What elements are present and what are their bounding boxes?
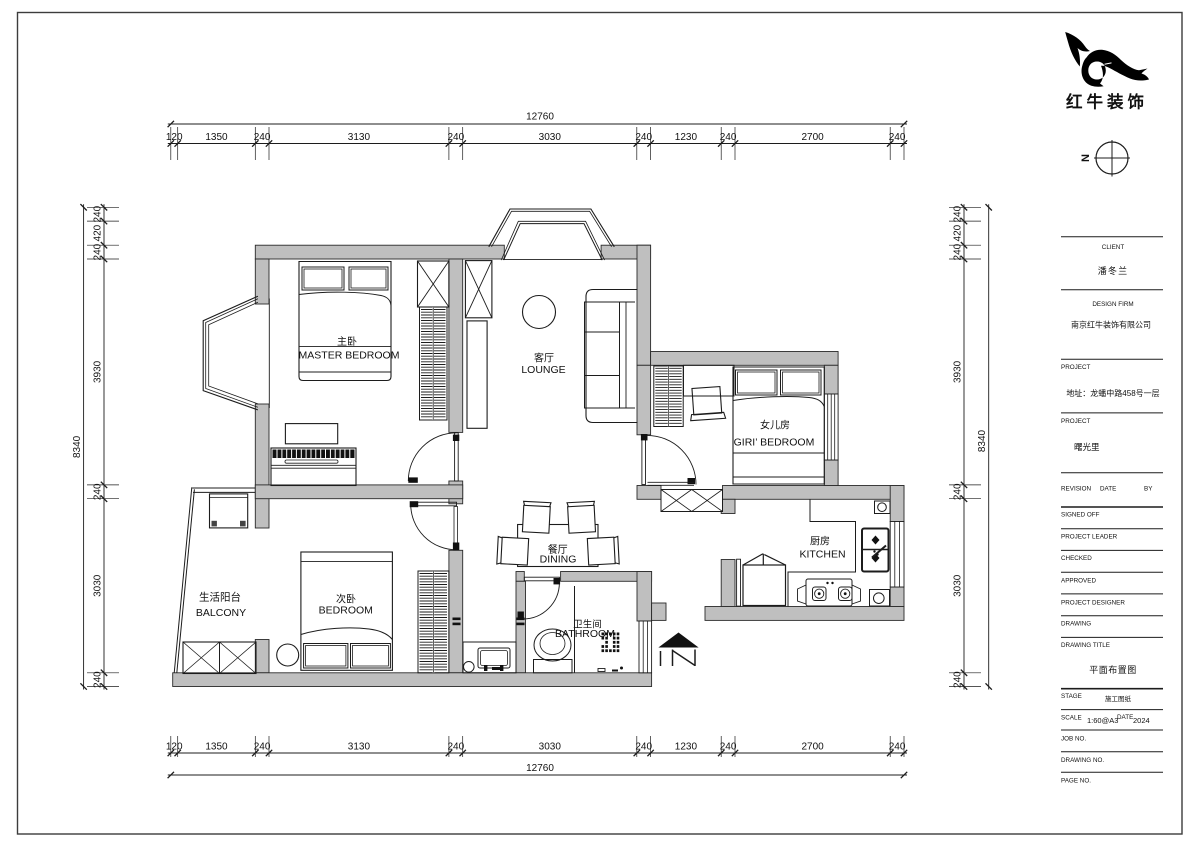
svg-text:420: 420	[93, 224, 104, 241]
svg-text:240: 240	[93, 671, 104, 688]
svg-text:主卧: 主卧	[337, 335, 357, 348]
svg-text:BEDROOM: BEDROOM	[319, 605, 373, 617]
svg-text:红牛装饰: 红牛装饰	[1066, 92, 1148, 112]
svg-text:12760: 12760	[526, 112, 554, 123]
svg-text:3030: 3030	[539, 742, 562, 753]
svg-text:1230: 1230	[675, 742, 698, 753]
svg-text:PROJECT DESIGNER: PROJECT DESIGNER	[1061, 600, 1125, 607]
svg-text:地址：龙蟠中路458号一层: 地址：龙蟠中路458号一层	[1066, 388, 1159, 398]
svg-text:240: 240	[889, 132, 906, 143]
svg-text:3930: 3930	[953, 360, 964, 383]
svg-text:曙光里: 曙光里	[1074, 442, 1100, 452]
svg-text:GIRI’ BEDROOM: GIRI’ BEDROOM	[734, 437, 815, 449]
svg-text:平面布置图: 平面布置图	[1089, 664, 1137, 675]
svg-text:南京红牛装饰有限公司: 南京红牛装饰有限公司	[1071, 320, 1151, 330]
svg-text:2024: 2024	[1133, 716, 1150, 725]
svg-text:DINING: DINING	[540, 554, 577, 566]
svg-text:BALCONY: BALCONY	[196, 607, 246, 619]
svg-text:KITCHEN: KITCHEN	[799, 549, 845, 561]
svg-text:240: 240	[254, 132, 271, 143]
svg-text:PAGE NO.: PAGE NO.	[1061, 778, 1091, 785]
svg-text:女儿房: 女儿房	[760, 419, 790, 432]
svg-text:JOB NO.: JOB NO.	[1061, 736, 1086, 743]
svg-text:DATE: DATE	[1100, 486, 1116, 493]
svg-text:DESIGN FIRM: DESIGN FIRM	[1092, 301, 1133, 308]
svg-text:DATE: DATE	[1117, 714, 1133, 721]
svg-text:REVISION: REVISION	[1061, 486, 1092, 493]
svg-text:240: 240	[720, 132, 737, 143]
svg-text:LOUNGE: LOUNGE	[521, 364, 565, 376]
svg-text:240: 240	[635, 742, 652, 753]
svg-text:CLIENT: CLIENT	[1102, 244, 1125, 251]
svg-text:240: 240	[953, 243, 964, 260]
svg-text:SIGNED OFF: SIGNED OFF	[1061, 512, 1100, 519]
svg-text:2700: 2700	[801, 742, 824, 753]
svg-text:240: 240	[447, 132, 464, 143]
svg-text:8340: 8340	[72, 435, 83, 458]
svg-text:1350: 1350	[205, 742, 228, 753]
svg-text:厨房: 厨房	[810, 535, 830, 548]
svg-text:MASTER BEDROOM: MASTER BEDROOM	[299, 350, 400, 362]
svg-text:BY: BY	[1144, 486, 1153, 493]
svg-text:DRAWING NO.: DRAWING NO.	[1061, 757, 1104, 764]
svg-text:240: 240	[254, 742, 271, 753]
svg-text:240: 240	[889, 742, 906, 753]
svg-text:2700: 2700	[801, 132, 824, 143]
svg-text:120: 120	[166, 742, 183, 753]
svg-text:3130: 3130	[348, 132, 371, 143]
svg-text:240: 240	[635, 132, 652, 143]
svg-text:12760: 12760	[526, 763, 554, 774]
svg-text:PROJECT: PROJECT	[1061, 364, 1091, 371]
svg-text:3030: 3030	[539, 132, 562, 143]
svg-text:240: 240	[93, 205, 104, 222]
svg-text:SCALE: SCALE	[1061, 715, 1082, 722]
svg-text:DRAWING: DRAWING	[1061, 621, 1091, 628]
svg-text:潘冬兰: 潘冬兰	[1098, 265, 1129, 276]
svg-text:PROJECT: PROJECT	[1061, 418, 1091, 425]
svg-text:3030: 3030	[953, 574, 964, 597]
svg-text:BATHROOM: BATHROOM	[555, 628, 615, 640]
svg-text:3130: 3130	[348, 742, 371, 753]
svg-text:240: 240	[447, 742, 464, 753]
svg-text:STAGE: STAGE	[1061, 693, 1082, 700]
svg-text:CHECKED: CHECKED	[1061, 555, 1092, 562]
svg-text:生活阳台: 生活阳台	[199, 591, 241, 604]
svg-text:240: 240	[953, 205, 964, 222]
svg-text:240: 240	[720, 742, 737, 753]
svg-text:420: 420	[953, 224, 964, 241]
svg-text:240: 240	[93, 243, 104, 260]
svg-text:PROJECT LEADER: PROJECT LEADER	[1061, 534, 1118, 541]
svg-text:DRAWING TITLE: DRAWING TITLE	[1061, 642, 1110, 649]
svg-text:APPROVED: APPROVED	[1061, 578, 1096, 585]
svg-text:客厅: 客厅	[534, 352, 554, 365]
svg-text:240: 240	[953, 671, 964, 688]
svg-text:施工图纸: 施工图纸	[1105, 694, 1132, 703]
svg-text:N: N	[1080, 154, 1092, 162]
svg-text:1350: 1350	[205, 132, 228, 143]
svg-text:120: 120	[166, 132, 183, 143]
svg-text:1:60@A3: 1:60@A3	[1087, 716, 1118, 725]
svg-text:3930: 3930	[93, 360, 104, 383]
svg-text:3030: 3030	[93, 574, 104, 597]
svg-text:240: 240	[93, 483, 104, 500]
svg-text:8340: 8340	[977, 429, 988, 452]
svg-text:1230: 1230	[675, 132, 698, 143]
svg-text:240: 240	[953, 483, 964, 500]
